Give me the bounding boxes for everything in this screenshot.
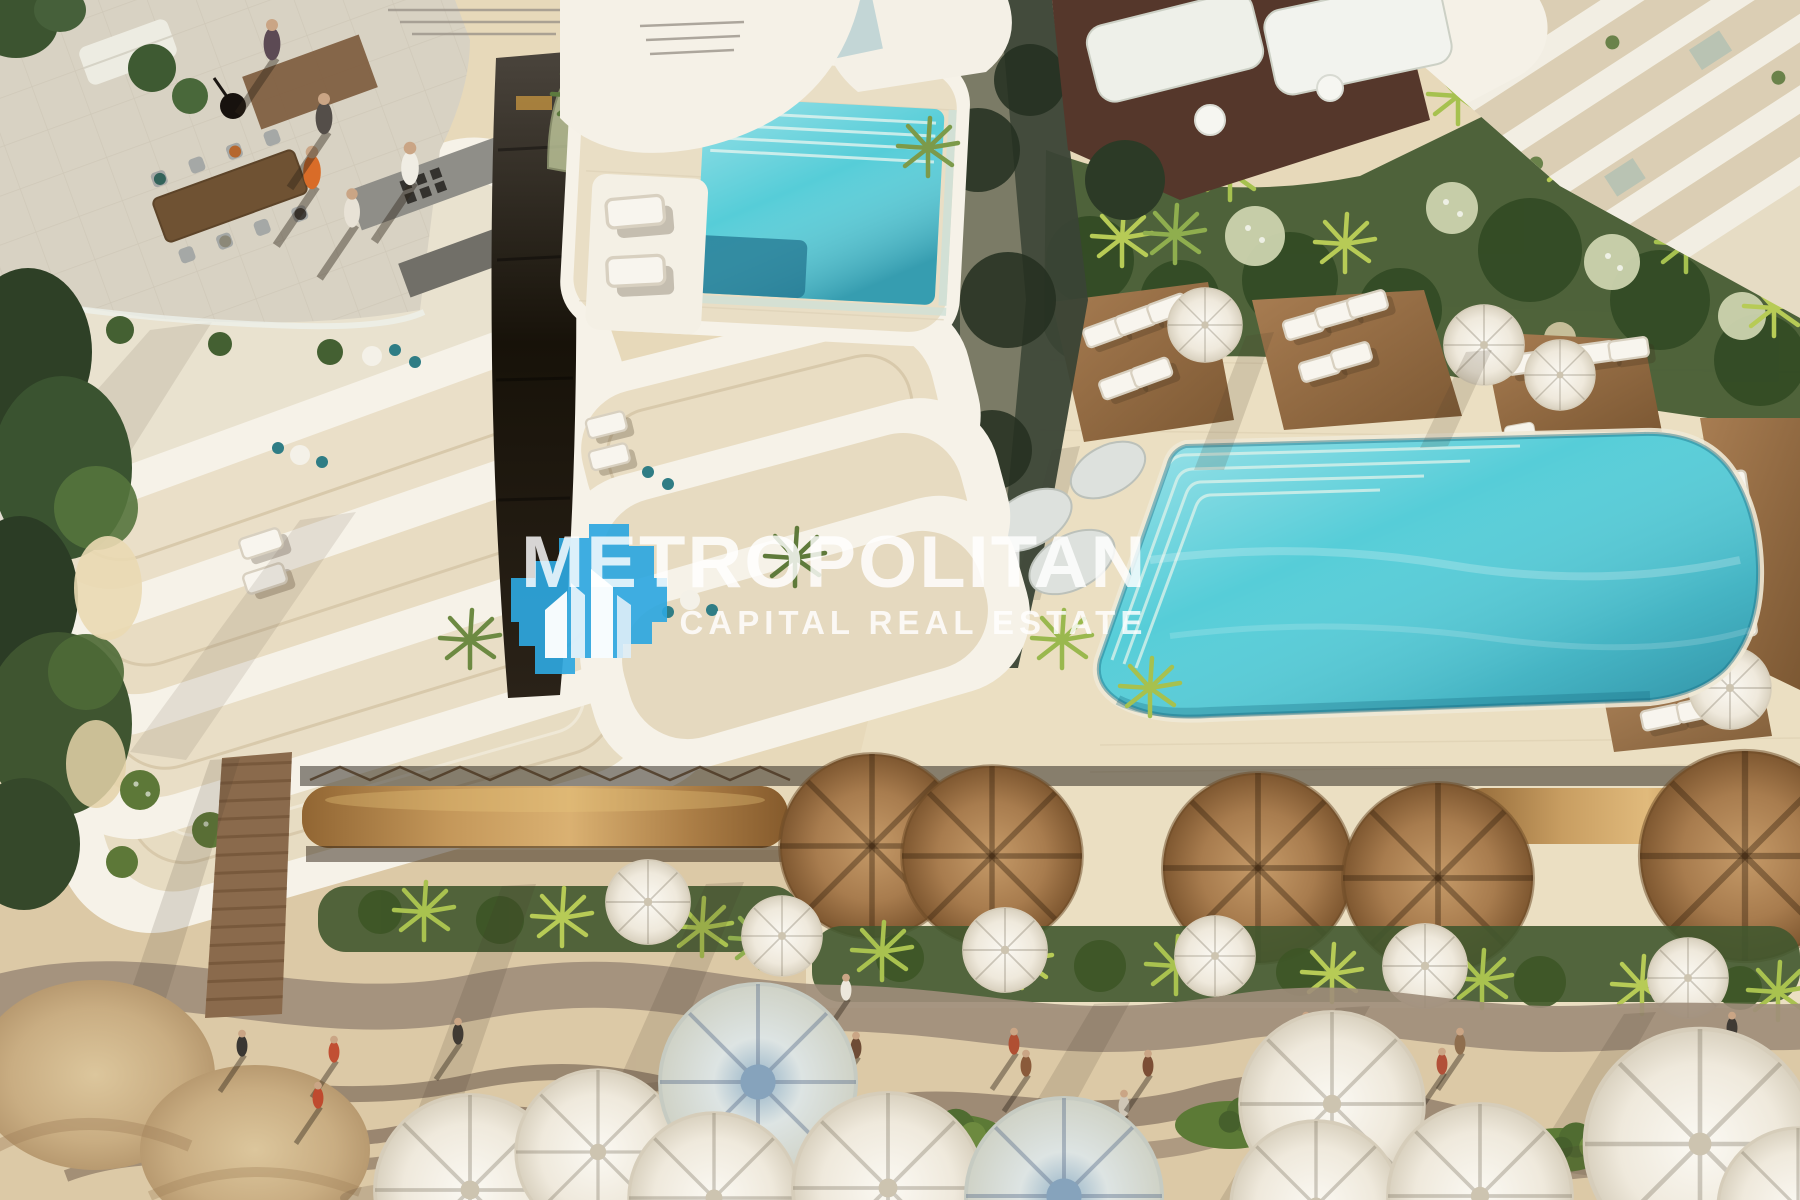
main-pool	[1099, 434, 1758, 717]
aerial-render: METROPOLITAN CAPITAL REAL ESTATE	[0, 0, 1800, 1200]
gold-light	[516, 96, 552, 110]
potted-tree	[172, 78, 208, 114]
aerial-scene	[0, 0, 1800, 1200]
potted-tree	[128, 44, 176, 92]
